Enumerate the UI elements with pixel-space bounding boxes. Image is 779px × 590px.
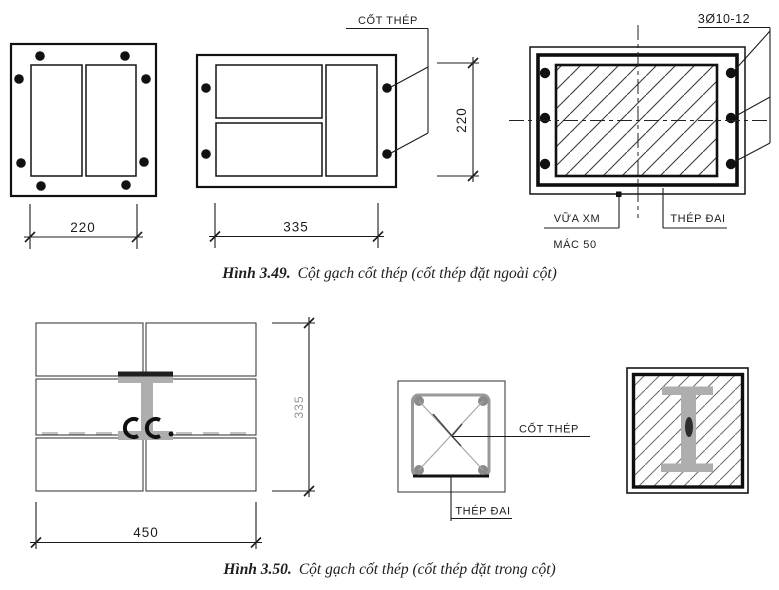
brick bbox=[146, 323, 256, 376]
tie-section-view: CỐT THÉP THÉP ĐAI bbox=[398, 381, 590, 521]
ibeam-bottom-flange bbox=[661, 464, 713, 473]
figure-349-caption: Hình 3.49.Cột gạch cốt thép (cốt thép đặ… bbox=[0, 265, 779, 283]
wide-column-section-view: CỐT THÉP 335 bbox=[197, 13, 428, 248]
brick bbox=[36, 438, 143, 491]
brick bbox=[36, 323, 143, 376]
brick bbox=[86, 65, 136, 176]
rebar-label: CỐT THÉP bbox=[358, 13, 418, 27]
dimension-value: 335 bbox=[283, 220, 309, 235]
figure-350-caption-text: Cột gạch cốt thép (cốt thép đặt trong cộ… bbox=[299, 561, 556, 578]
leader-end-marker bbox=[616, 192, 622, 198]
dimension-value: 335 bbox=[292, 395, 306, 418]
rebar-label: CỐT THÉP bbox=[519, 422, 579, 436]
stirrup-label: THÉP ĐAI bbox=[670, 212, 725, 225]
ibeam-section-view bbox=[627, 368, 748, 493]
figure-drawings-canvas: 220 CỐT THÉP 335 3 bbox=[0, 0, 779, 590]
print-smudge bbox=[685, 417, 693, 437]
brick bbox=[216, 123, 322, 176]
masonry-plan-view: 335 450 bbox=[30, 317, 315, 549]
mortar-label-line2: MÁC 50 bbox=[553, 238, 596, 251]
mortar-label-line1: VỮA XM bbox=[554, 212, 601, 225]
dimension-value: 450 bbox=[133, 525, 159, 540]
figure-page: 220 CỐT THÉP 335 3 bbox=[0, 0, 779, 590]
height-dimension: 220 bbox=[437, 57, 479, 182]
ibeam-top-flange-edge bbox=[118, 372, 173, 377]
figure-349-caption-text: Cột gạch cốt thép (cốt thép đặt ngoài cộ… bbox=[298, 265, 557, 282]
width-dimension: 335 bbox=[209, 203, 384, 248]
rebar-spec-label: 3Ø10-12 bbox=[698, 12, 750, 26]
height-dimension: 335 bbox=[272, 317, 315, 497]
ibeam-top-flange bbox=[118, 376, 173, 383]
width-dimension: 220 bbox=[24, 204, 143, 249]
detail-section-view: 3Ø10-12 220 VỮA XM MÁC 50 THÉP ĐAI bbox=[437, 12, 770, 251]
figure-350-caption-number: Hình 3.50. bbox=[223, 561, 291, 578]
dimension-value: 220 bbox=[454, 107, 469, 133]
brick bbox=[216, 65, 322, 118]
brick bbox=[146, 438, 256, 491]
figure-350-caption: Hình 3.50.Cột gạch cốt thép (cốt thép đặ… bbox=[0, 561, 779, 579]
dimension-value: 220 bbox=[70, 220, 96, 235]
brick bbox=[31, 65, 82, 176]
square-column-section-view: 220 bbox=[11, 44, 156, 249]
stirrup-label: THÉP ĐAI bbox=[455, 505, 510, 518]
width-dimension: 450 bbox=[30, 502, 262, 549]
figure-349-caption-number: Hình 3.49. bbox=[222, 265, 290, 282]
mortar-callout: VỮA XM MÁC 50 bbox=[544, 192, 622, 252]
brick bbox=[326, 65, 377, 176]
ibeam-top-flange bbox=[662, 387, 713, 396]
